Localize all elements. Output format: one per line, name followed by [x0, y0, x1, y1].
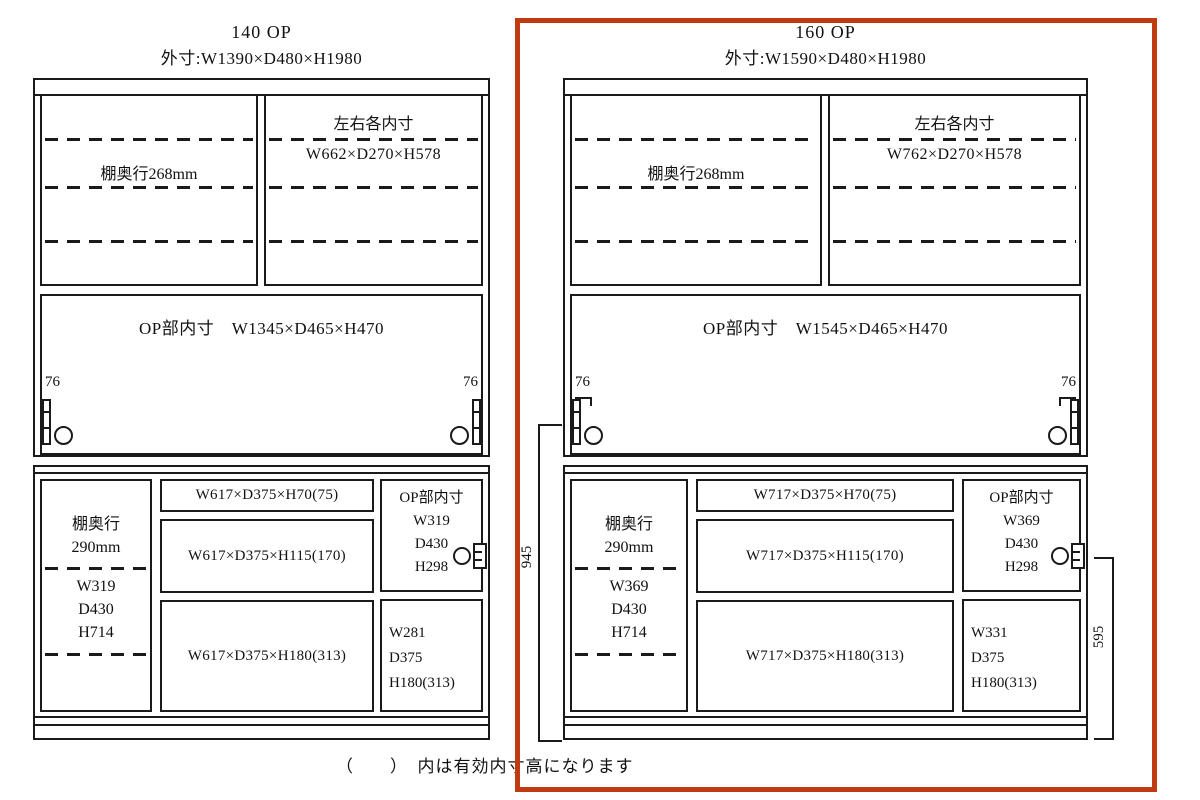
- inner-dims-title: 左右各内寸: [266, 110, 481, 134]
- outlet-hole-icon: [453, 547, 471, 565]
- handle-knob-icon: [1048, 426, 1067, 445]
- lower-columns: 棚奥行 290mm W369 D430 H714 W717×D375×H70(7…: [570, 479, 1081, 712]
- dim-945-label: 945: [519, 536, 535, 578]
- drawer-dims-label: W617×D375×H115(170): [188, 548, 346, 565]
- outlet-icon: [453, 543, 487, 569]
- shelf-dashed-line: [833, 138, 1076, 141]
- cabinet-140-lower-unit: 棚奥行 290mm W319 D430 H714 W617×D375×H70(7…: [33, 465, 490, 740]
- shelf-column: 棚奥行 290mm W319 D430 H714: [40, 479, 152, 712]
- outlet-hole-icon: [1051, 547, 1069, 565]
- handle-bar-icon: [1070, 399, 1079, 445]
- inner-dims-title: 左右各内寸: [830, 110, 1079, 134]
- corner-compartment: W331 D375 H180(313): [962, 599, 1081, 712]
- kick-line: [35, 724, 488, 726]
- handle-bar-icon: [472, 399, 481, 445]
- corner-width: W331: [971, 621, 1079, 646]
- shelf-dashed-line: [575, 138, 817, 141]
- shelf-depth-label: 棚奥行268mm: [42, 160, 256, 184]
- kick-line: [565, 724, 1086, 726]
- op-width: W369: [964, 510, 1079, 533]
- right-door-handle: [1039, 399, 1079, 447]
- upper-left-door: 棚奥行268mm: [40, 94, 258, 286]
- right-door-handle: [441, 399, 481, 447]
- shelf-depth-label: 棚奥行 290mm: [42, 513, 150, 559]
- drawer-top: W717×D375×H70(75): [696, 479, 954, 512]
- op-column: OP部内寸 W319 D430 H298 W281 D375: [380, 479, 483, 712]
- drawer-middle: W717×D375×H115(170): [696, 519, 954, 593]
- op-width: W319: [382, 510, 481, 533]
- kick-line: [565, 716, 1086, 718]
- dim-595-label: 595: [1091, 616, 1107, 658]
- corner-depth: D375: [389, 646, 481, 671]
- gap-76-label-right: 76: [463, 374, 478, 391]
- op-inner-dims-label: OP部内寸 W1545×D465×H470: [572, 314, 1079, 339]
- corner-height: H180(313): [971, 671, 1079, 696]
- op-title: OP部内寸: [964, 487, 1079, 510]
- drawer-top: W617×D375×H70(75): [160, 479, 374, 512]
- shelf-dashed-line: [269, 186, 478, 189]
- cabinet-140-outer-dims: 外寸:W1390×D480×H1980: [33, 44, 490, 69]
- handle-knob-icon: [450, 426, 469, 445]
- gap-76-label-left: 76: [45, 374, 60, 391]
- shelf-dashed-line: [575, 567, 683, 570]
- drawer-dims-label: W617×D375×H180(313): [188, 648, 346, 665]
- cabinet-140-title-block: 140 OP 外寸:W1390×D480×H1980: [33, 22, 490, 69]
- corner-height: H180(313): [389, 671, 481, 696]
- outlet-icon: [1051, 543, 1085, 569]
- shelf-dashed-line: [45, 653, 147, 656]
- cabinet-160-lower-unit: 棚奥行 290mm W369 D430 H714 W717×D375×H70(7…: [563, 465, 1088, 740]
- shelf-dashed-line: [833, 186, 1076, 189]
- cabinet-140-upper-unit: 棚奥行268mm 左右各内寸 W662×D270×H578 OP部内寸 W134…: [33, 78, 490, 457]
- shelf-dashed-line: [45, 567, 147, 570]
- lower-inner-top-line: [565, 472, 1086, 474]
- shelf-dashed-line: [575, 653, 683, 656]
- cabinet-160-title-block: 160 OP 外寸:W1590×D480×H1980: [563, 22, 1088, 69]
- corner-width: W281: [389, 621, 481, 646]
- shelf-column: 棚奥行 290mm W369 D430 H714: [570, 479, 688, 712]
- drawer-bottom: W617×D375×H180(313): [160, 600, 374, 712]
- shelf-dashed-line: [45, 186, 253, 189]
- dim-595-line: [1112, 557, 1114, 740]
- op-compartment: OP部内寸 W319 D430 H298: [380, 479, 483, 592]
- cabinet-160-title: 160 OP: [563, 22, 1088, 43]
- shelf-dashed-line: [45, 240, 253, 243]
- left-door-handle: [42, 399, 82, 447]
- cabinet-160-upper-unit: 棚奥行268mm 左右各内寸 W762×D270×H578 OP部内寸 W154…: [563, 78, 1088, 457]
- drawer-dims-label: W717×D375×H70(75): [754, 487, 897, 504]
- op-compartment: OP部内寸 W369 D430 H298: [962, 479, 1081, 592]
- op-column: OP部内寸 W369 D430 H298 W331 D375: [962, 479, 1081, 712]
- inner-dims-value: W662×D270×H578: [266, 146, 481, 164]
- drawer-dims-label: W717×D375×H180(313): [746, 648, 904, 665]
- drawer-column: W617×D375×H70(75) W617×D375×H115(170) W6…: [160, 479, 374, 712]
- op-open-section: OP部内寸 W1345×D465×H470 76 76: [40, 294, 483, 455]
- caption-note: （ ） 内は有効内寸高になります: [336, 752, 634, 777]
- handle-bar-icon: [42, 399, 51, 445]
- op-open-section: OP部内寸 W1545×D465×H470 76 76: [570, 294, 1081, 455]
- drawer-bottom: W717×D375×H180(313): [696, 600, 954, 712]
- handle-bar-icon: [572, 399, 581, 445]
- corner-compartment: W281 D375 H180(313): [380, 599, 483, 712]
- gap-76-label-left: 76: [575, 374, 590, 391]
- shelf-depth-label: 棚奥行 290mm: [572, 513, 686, 559]
- shelf-depth-label: 棚奥行268mm: [572, 160, 820, 184]
- upper-right-door: 左右各内寸 W762×D270×H578: [828, 94, 1081, 286]
- lower-inner-top-line: [35, 472, 488, 474]
- shelf-dashed-line: [833, 240, 1076, 243]
- kick-line: [35, 716, 488, 718]
- outlet-plug-icon: [1071, 543, 1085, 569]
- shelf-dashed-line: [575, 186, 817, 189]
- op-title: OP部内寸: [382, 487, 481, 510]
- upper-left-door: 棚奥行268mm: [570, 94, 822, 286]
- left-door-handle: [572, 399, 612, 447]
- dim-595-tick-bottom: [1094, 738, 1114, 740]
- cabinet-160-outer-dims: 外寸:W1590×D480×H1980: [563, 44, 1088, 69]
- cabinet-140-title: 140 OP: [33, 22, 490, 43]
- dimension-spec-sheet: 140 OP 外寸:W1390×D480×H1980 棚奥行268mm 左右各内…: [0, 0, 1200, 800]
- handle-knob-icon: [54, 426, 73, 445]
- dim-595-tick-top: [1094, 557, 1114, 559]
- dim-945-tick-top: [538, 424, 562, 426]
- shelf-dashed-line: [269, 138, 478, 141]
- dim-945-tick-bottom: [538, 740, 562, 742]
- shelf-dashed-line: [575, 240, 817, 243]
- drawer-middle: W617×D375×H115(170): [160, 519, 374, 593]
- drawer-dims-label: W717×D375×H115(170): [746, 548, 904, 565]
- drawer-column: W717×D375×H70(75) W717×D375×H115(170) W7…: [696, 479, 954, 712]
- shelf-inner-dims: W319 D430 H714: [42, 575, 150, 644]
- dim-945-line: [538, 424, 540, 742]
- drawer-dims-label: W617×D375×H70(75): [196, 487, 339, 504]
- op-inner-dims-label: OP部内寸 W1345×D465×H470: [42, 314, 481, 339]
- upper-doors: 棚奥行268mm 左右各内寸 W662×D270×H578: [40, 94, 483, 286]
- upper-doors: 棚奥行268mm 左右各内寸 W762×D270×H578: [570, 94, 1081, 286]
- inner-dims-value: W762×D270×H578: [830, 146, 1079, 164]
- shelf-dashed-line: [45, 138, 253, 141]
- lower-columns: 棚奥行 290mm W319 D430 H714 W617×D375×H70(7…: [40, 479, 483, 712]
- handle-knob-icon: [584, 426, 603, 445]
- outlet-plug-icon: [473, 543, 487, 569]
- corner-depth: D375: [971, 646, 1079, 671]
- upper-right-door: 左右各内寸 W662×D270×H578: [264, 94, 483, 286]
- gap-76-label-right: 76: [1061, 374, 1076, 391]
- shelf-dashed-line: [269, 240, 478, 243]
- shelf-inner-dims: W369 D430 H714: [572, 575, 686, 644]
